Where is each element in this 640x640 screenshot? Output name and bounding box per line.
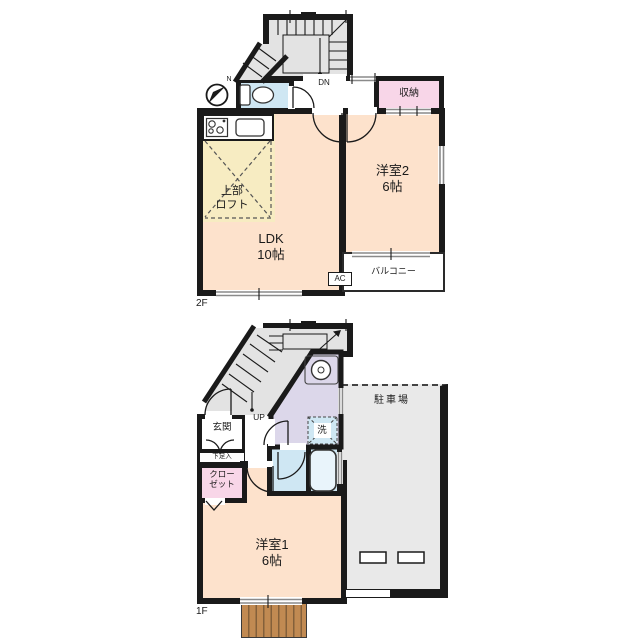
- floor-plan: DN N 収納 洋室26帖 LDK10帖 上部ロフト バルコニー AC 2F U…: [0, 0, 640, 640]
- wood-deck: [241, 604, 307, 638]
- up-label: UP: [244, 412, 274, 423]
- washbasin-icon: [305, 356, 338, 384]
- staircase-room-1f: [263, 323, 353, 357]
- bathroom-left: [267, 444, 311, 496]
- compass-north-label: N: [224, 76, 234, 85]
- shoe-box-label: 下足入: [199, 453, 245, 461]
- washroom-1f: [271, 352, 341, 447]
- entrance-label: 玄関: [200, 422, 244, 434]
- dn-label: DN: [310, 78, 338, 88]
- floor2-label: 2F: [196, 298, 226, 311]
- parking-area: [342, 384, 448, 598]
- compass-icon: [207, 85, 228, 106]
- ldk-label: LDK10帖: [197, 231, 345, 264]
- parking-label: 駐車場: [342, 395, 442, 408]
- laundry-label: 洗: [314, 423, 331, 438]
- loft-label: 上部ロフト: [199, 185, 265, 213]
- bedroom1-label: 洋室16帖: [197, 537, 347, 570]
- entrance-room: [197, 414, 247, 454]
- ac-box: AC: [328, 272, 352, 286]
- storage-label: 収納: [374, 88, 444, 101]
- closet-label: クローゼット: [201, 469, 243, 489]
- staircase-room-2f: [263, 14, 353, 82]
- balcony-label: バルコニー: [342, 266, 445, 277]
- bathroom-tub: [306, 444, 342, 496]
- floor1-label: 1F: [196, 606, 226, 619]
- bedroom2-label: 洋室26帖: [340, 163, 445, 196]
